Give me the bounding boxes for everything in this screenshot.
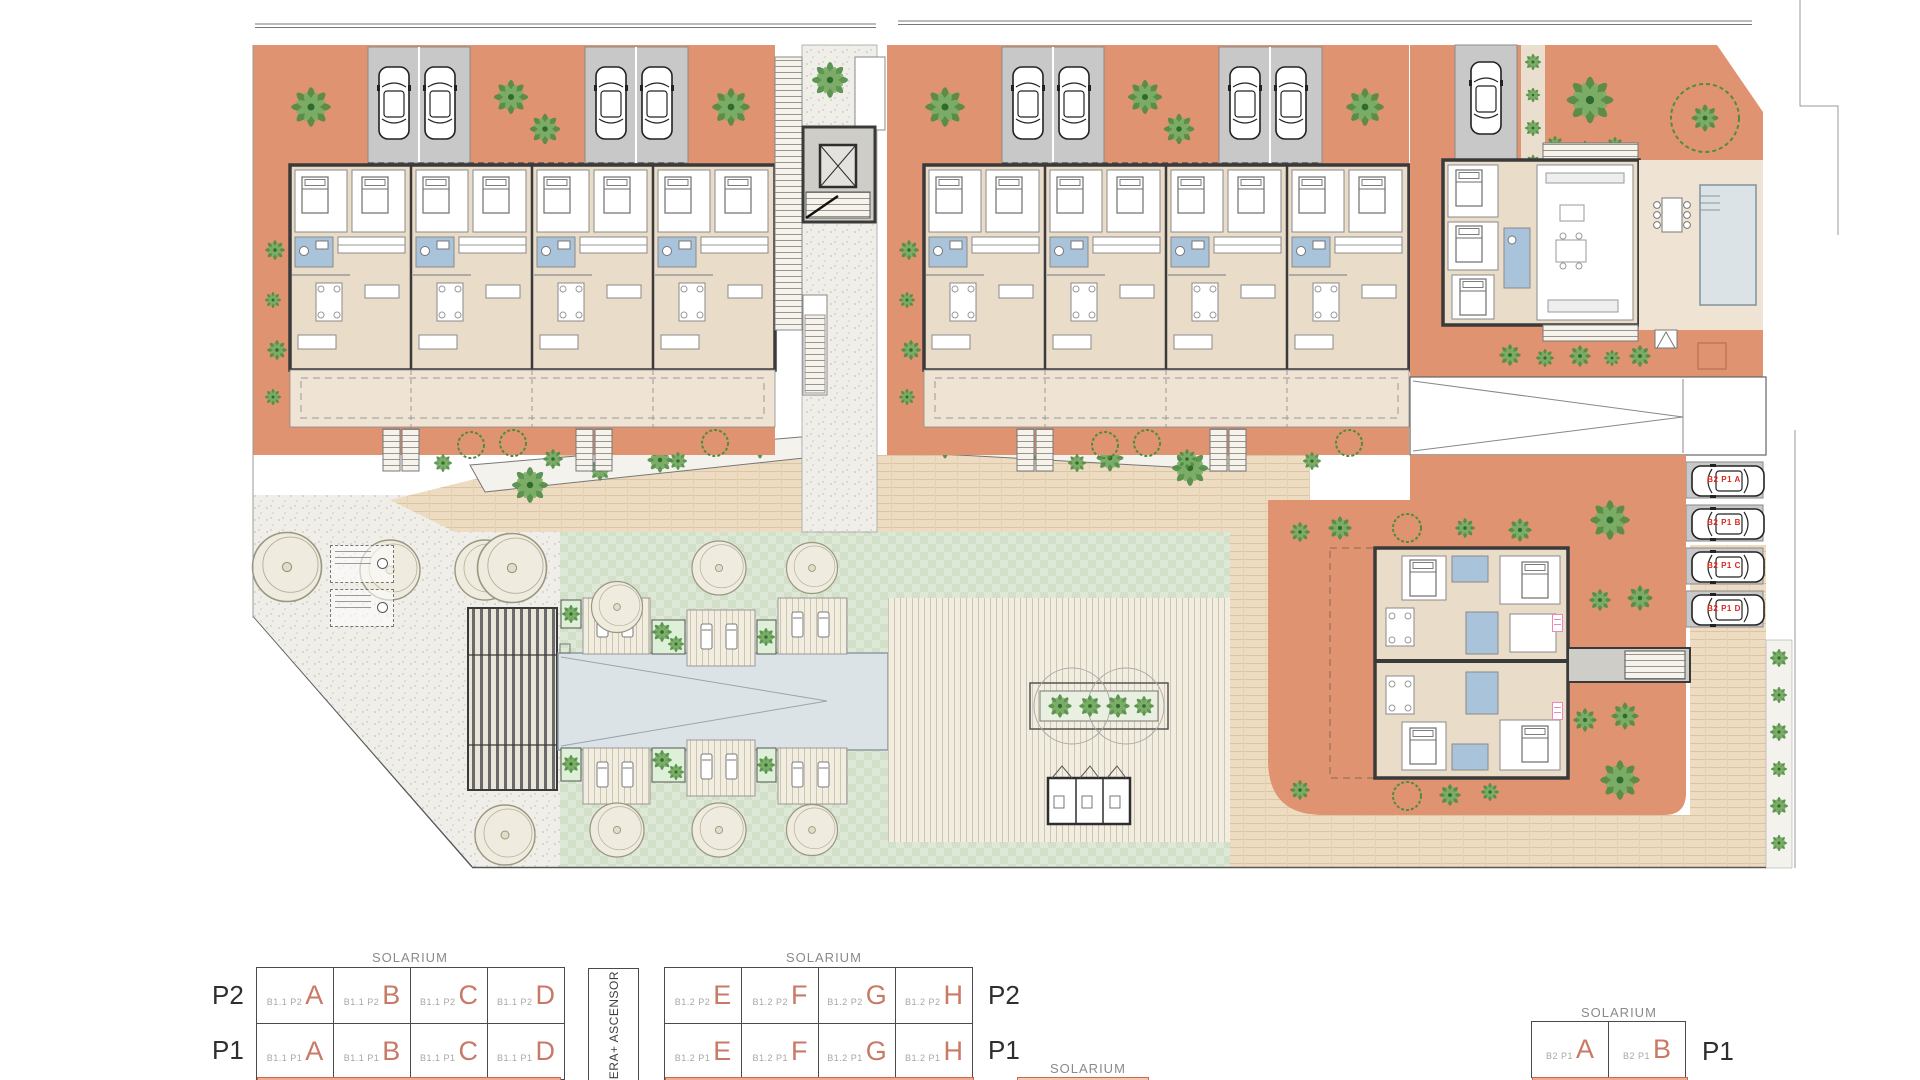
legend-cell: B1.2 P2E	[664, 967, 742, 1024]
row-label-p1: P1	[212, 1035, 244, 1066]
solarium-label-center: SOLARIUM	[1050, 1061, 1126, 1076]
duplex-entry-corridor	[1568, 648, 1690, 682]
legend-table-b12: B1.2 P2E B1.2 P2F B1.2 P2G B1.2 P2H B1.2…	[665, 968, 973, 1080]
solarium-label-b11: SOLARIUM	[372, 950, 448, 965]
legend-row-p2: B1.1 P2A B1.1 P2B B1.1 P2C B1.1 P2D	[257, 968, 565, 1024]
legend-cell: B1.1 P1C	[410, 1023, 488, 1080]
legend-cell: B1.2 P2H	[895, 967, 973, 1024]
site-plan-canvas: B2 P1 A B2 P1 B B2 P1 C B2 P1 D SOLARIUM…	[0, 0, 1920, 1080]
utility-marker-box	[330, 545, 394, 583]
parking-label: B2 P1 B	[1693, 518, 1755, 527]
legend-cell: B1.1 P2C	[410, 967, 488, 1024]
row-label-p2: P2	[212, 980, 244, 1011]
legend-row-p2: B1.2 P2E B1.2 P2F B1.2 P2G B1.2 P2H	[665, 968, 973, 1024]
legend-row-p1: B1.1 P1A B1.1 P1B B1.1 P1C B1.1 P1D	[257, 1024, 565, 1080]
legend-cell: B1.1 P1D	[487, 1023, 565, 1080]
legend-cell: B1.2 P1E	[664, 1023, 742, 1080]
core-legend-box: ESCALERA+ ASCENSOR	[588, 968, 639, 1080]
legend-table-b2: B2 P1A B2 P1B	[1532, 1022, 1686, 1078]
row-label-p1: P1	[1702, 1036, 1734, 1067]
elevator-stair-core	[803, 127, 875, 222]
parking-bays	[1686, 462, 1764, 627]
legend-cell: B1.2 P1H	[895, 1023, 973, 1080]
legend-row-p1: B2 P1A B2 P1B	[1532, 1022, 1686, 1078]
core-legend-label: ESCALERA+ ASCENSOR	[607, 971, 621, 1080]
row-label-p2: P2	[988, 980, 1020, 1011]
right-hedge	[1766, 640, 1792, 868]
utility-marker-box	[330, 589, 394, 627]
parking-label: B2 P1 C	[1693, 561, 1755, 570]
legend-cell: B1.1 P1B	[333, 1023, 411, 1080]
legend-table-b11: B1.1 P2A B1.1 P2B B1.1 P2C B1.1 P2D B1.1…	[257, 968, 565, 1080]
parking-label: B2 P1 D	[1693, 604, 1755, 613]
outdoor-dining-table	[1654, 198, 1691, 232]
legend-cell: B2 P1A	[1531, 1021, 1609, 1078]
building-b2-block	[1268, 455, 1690, 815]
unit-tag	[1552, 702, 1563, 720]
building-b12	[887, 45, 1409, 472]
pergola	[468, 608, 557, 790]
villa-block	[1410, 45, 1763, 377]
solarium-label-b2: SOLARIUM	[1581, 1005, 1657, 1020]
row-label-p1: P1	[988, 1035, 1020, 1066]
villa-pool	[1700, 185, 1756, 305]
legend-cell: B1.1 P2A	[256, 967, 334, 1024]
legend-row-p1: B1.2 P1E B1.2 P1F B1.2 P1G B1.2 P1H	[665, 1024, 973, 1080]
building-b11	[253, 45, 775, 472]
unit-tag	[1552, 614, 1563, 632]
legend-cell: B1.2 P1G	[818, 1023, 896, 1080]
legend-cell: B1.2 P2F	[741, 967, 819, 1024]
solarium-label-b12: SOLARIUM	[786, 950, 862, 965]
legend-cell: B2 P1B	[1608, 1021, 1686, 1078]
legend-cell: B1.2 P2G	[818, 967, 896, 1024]
parking-label: B2 P1 A	[1693, 475, 1755, 484]
villa-floor-plan	[1443, 160, 1639, 325]
legend-cell: B1.1 P2D	[487, 967, 565, 1024]
legend-cell: B1.1 P2B	[333, 967, 411, 1024]
duplex-floor-plan	[1375, 548, 1568, 778]
site-plan-drawing	[0, 0, 1920, 1080]
driveway-ramp	[1410, 377, 1766, 455]
legend-cell: B1.2 P1F	[741, 1023, 819, 1080]
legend-cell: B1.1 P1A	[256, 1023, 334, 1080]
